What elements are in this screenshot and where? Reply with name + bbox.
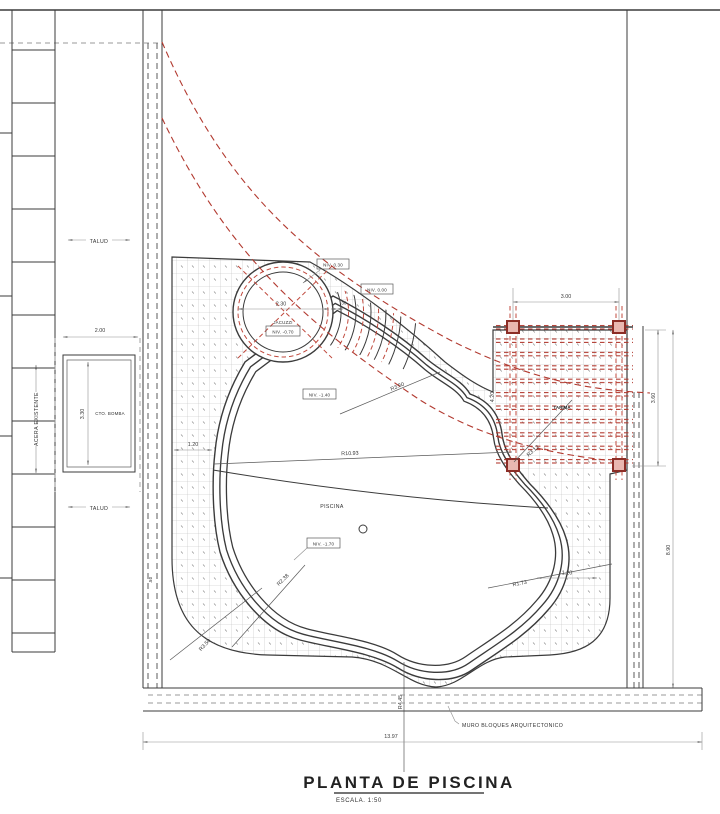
- jacuzzi-circle: [233, 262, 333, 362]
- coping-width-dim: .30: [340, 301, 347, 306]
- deck-right-width-dim: 1.20: [562, 571, 573, 577]
- existing-sidewalk-ladder: [0, 10, 55, 652]
- pump-room: 3.30 CTO. BOMBA 2.00: [55, 328, 140, 492]
- pergola-post-top-right: [613, 321, 625, 333]
- pergola-left-dim: 4.20: [490, 392, 496, 403]
- acera-existente-label: ACERA EXISTENTE: [34, 392, 40, 446]
- pool-plan-drawing: TARIMA R3.12 3.30 CTO. BOMBA 2.00 TALUD …: [0, 0, 720, 814]
- tarima-label: TARIMA: [553, 405, 571, 410]
- corner-outer-radius-label: R3.50: [198, 638, 212, 653]
- site-width-dim: 13.97: [384, 734, 398, 740]
- wall-width-dim: .50: [148, 576, 153, 583]
- pergola-post-bottom-right: [613, 459, 625, 471]
- pergola-width-dim: 3.00: [561, 294, 572, 300]
- level-shallow-label: NIV. -1.40: [309, 393, 331, 398]
- pump-room-width-dim: 2.00: [95, 328, 106, 334]
- site-height-dim: 8.90: [666, 545, 672, 556]
- title-block: PLANTA DE PISCINA ESCALA. 1:50: [303, 773, 515, 804]
- piscina-label: PISCINA: [320, 504, 344, 510]
- drawing-title: PLANTA DE PISCINA: [303, 773, 515, 792]
- level-coping-top-label: NIV. 0.30: [323, 263, 343, 268]
- pergola: TARIMA R3.12: [493, 306, 633, 480]
- deck-left-width-dim: 1.20: [188, 442, 199, 448]
- pool-plan-page: TARIMA R3.12 3.30 CTO. BOMBA 2.00 TALUD …: [0, 0, 720, 814]
- level-deck-label: NIV. 0.00: [367, 288, 387, 293]
- muro-bloques-label: MURO BLOQUES ARQUITECTONICO: [462, 723, 563, 729]
- talud-top-label: TALUD: [90, 239, 109, 245]
- talud-bottom-label: TALUD: [90, 506, 109, 512]
- bottom-lobe-radius-label: R4.45: [398, 695, 404, 709]
- main-arc-radius-label: R10.93: [341, 451, 359, 458]
- jacuzzi-label: JACUZZI: [273, 320, 292, 325]
- bottom-wall: MURO BLOQUES ARQUITECTONICO 13.97: [143, 688, 702, 750]
- level-jacuzzi-label: NIV. -0.70: [272, 330, 294, 335]
- drawing-scale: ESCALA. 1:50: [336, 798, 382, 804]
- pergola-height-dim: 3.60: [651, 393, 657, 404]
- pergola-post-bottom-left: [507, 459, 519, 471]
- pump-room-label: CTO. BOMBA: [95, 411, 125, 416]
- level-deep-label: NIV. -1.70: [313, 542, 335, 547]
- pergola-post-top-left: [507, 321, 519, 333]
- jacuzzi-diameter-dim: 2.30: [276, 302, 287, 308]
- pump-room-height-dim: 3.30: [80, 409, 86, 420]
